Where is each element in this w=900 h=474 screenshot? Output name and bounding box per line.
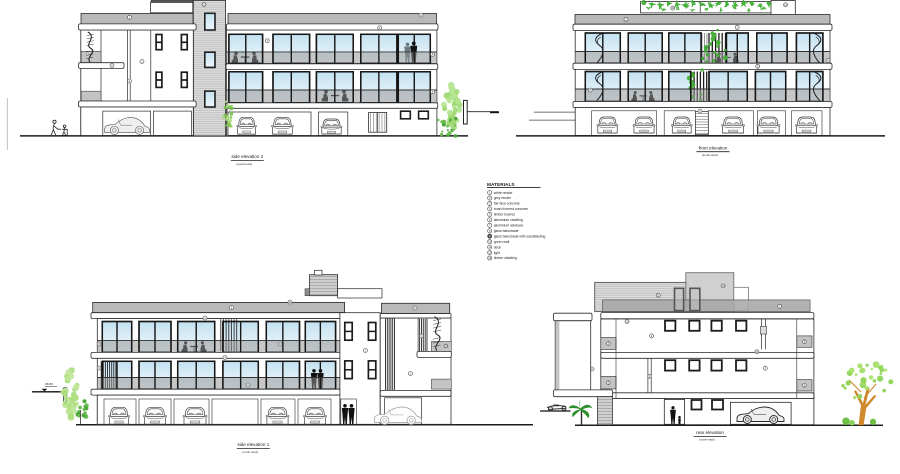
svg-text:timber louvres: timber louvres bbox=[494, 213, 516, 217]
svg-text:aluminium cladding: aluminium cladding bbox=[494, 218, 523, 222]
svg-text:green wall: green wall bbox=[494, 240, 510, 244]
svg-text:(south-east): (south-east) bbox=[236, 162, 252, 166]
svg-text:deck: deck bbox=[494, 245, 501, 249]
svg-text:(south-west): (south-west) bbox=[702, 153, 719, 157]
svg-text:(north-east): (north-east) bbox=[699, 438, 715, 442]
svg-text:(north-west): (north-west) bbox=[242, 450, 258, 454]
svg-text:timber cladding: timber cladding bbox=[494, 256, 517, 260]
svg-text:glass balustrade with sandblas: glass balustrade with sandblasting bbox=[494, 234, 546, 238]
svg-text:aluminium windows: aluminium windows bbox=[494, 224, 524, 228]
svg-text:white render: white render bbox=[494, 191, 514, 195]
svg-text:board formed concrete: board formed concrete bbox=[494, 207, 528, 211]
svg-text:light: light bbox=[494, 251, 500, 255]
svg-text:front elevation: front elevation bbox=[699, 145, 728, 150]
svg-text:side elevation 1: side elevation 1 bbox=[237, 442, 269, 447]
svg-text:rear elevation: rear elevation bbox=[696, 430, 724, 435]
svg-text:grey render: grey render bbox=[494, 196, 512, 200]
svg-text:fair face concrete: fair face concrete bbox=[494, 202, 520, 206]
svg-text:glass balustrade: glass balustrade bbox=[494, 229, 519, 233]
svg-text:68.80: 68.80 bbox=[45, 382, 53, 386]
svg-text:side elevation 2: side elevation 2 bbox=[231, 154, 263, 159]
